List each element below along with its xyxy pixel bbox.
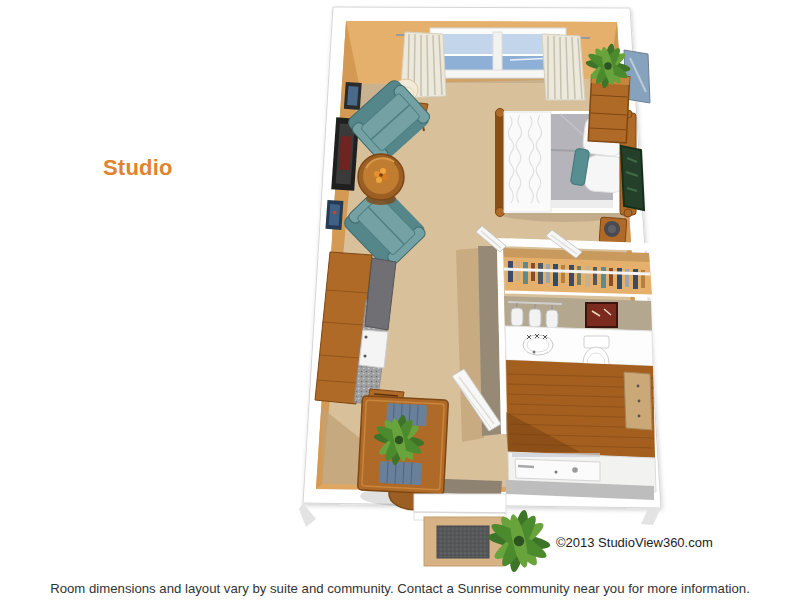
right-wall-art bbox=[621, 146, 644, 210]
wall-bevel bbox=[299, 503, 316, 527]
studio-floor-plan bbox=[0, 0, 800, 606]
bathroom-art bbox=[586, 303, 617, 327]
dining-set bbox=[358, 389, 449, 510]
window-shadow bbox=[432, 78, 564, 83]
doormat bbox=[424, 517, 503, 566]
bedside-stool bbox=[599, 217, 627, 244]
linen-cabinet bbox=[624, 372, 652, 430]
vanity-counter bbox=[505, 326, 653, 366]
white-duvet bbox=[504, 112, 551, 212]
entry-threshold bbox=[414, 494, 506, 520]
copyright-text: ©2013 StudioView360.com bbox=[556, 535, 713, 550]
floor-plan-page: Studio bbox=[0, 0, 800, 606]
placemat-bottom bbox=[379, 461, 422, 485]
mini-fridge bbox=[359, 330, 388, 368]
wall-bevel bbox=[641, 508, 661, 525]
disclaimer-text: Room dimensions and layout vary by suite… bbox=[0, 581, 800, 596]
chest-of-drawers bbox=[588, 75, 629, 143]
vanity-wall bbox=[504, 296, 652, 331]
curtain-right bbox=[542, 34, 585, 100]
